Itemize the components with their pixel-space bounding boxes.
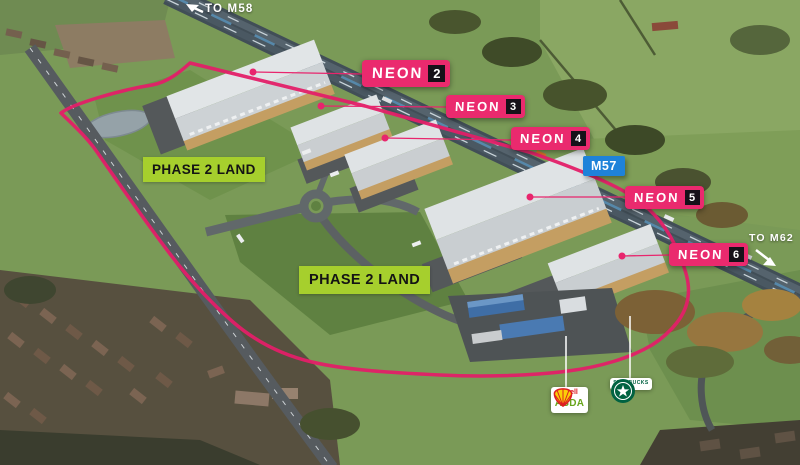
- to-m58-arrow-icon: [186, 4, 203, 12]
- motorway-badge-m57: M57: [583, 156, 625, 176]
- neon-logo: NEON: [678, 248, 724, 261]
- starbucks-card: STARBUCKS: [610, 378, 652, 390]
- unit-badge-neon-2: NEON 2: [362, 60, 450, 87]
- unit-badge-neon-3: NEON 3: [446, 95, 525, 118]
- phase-2-land-label: PHASE 2 LAND: [143, 157, 265, 182]
- neon-logo: NEON: [372, 66, 424, 81]
- unit-number: 3: [506, 99, 521, 114]
- neon-logo: NEON: [634, 191, 680, 204]
- direction-label-m62: TO M62: [749, 232, 794, 244]
- shell-asda-card: Shell ASDA: [551, 387, 588, 413]
- direction-label-m58: TO M58: [205, 3, 254, 15]
- unit-number: 6: [729, 247, 744, 262]
- shell-logo-icon: [551, 387, 575, 408]
- starbucks-logo-icon: [610, 378, 636, 404]
- site-aerial-map: TO M58 TO M62 NEON 2 NEON 3 NEON 4 NEON …: [0, 0, 800, 465]
- to-m62-arrow-icon: [756, 250, 776, 266]
- unit-badge-neon-6: NEON 6: [669, 243, 748, 266]
- neon-logo: NEON: [455, 100, 501, 113]
- neon-logo: NEON: [520, 132, 566, 145]
- unit-number: 2: [428, 65, 445, 82]
- unit-number: 5: [685, 190, 700, 205]
- unit-marker-dot: [250, 69, 626, 260]
- unit-badge-neon-4: NEON 4: [511, 127, 590, 150]
- unit-number: 4: [571, 131, 586, 146]
- site-boundary: [61, 63, 689, 376]
- unit-badge-neon-5: NEON 5: [625, 186, 704, 209]
- phase-2-land-label: PHASE 2 LAND: [299, 266, 430, 294]
